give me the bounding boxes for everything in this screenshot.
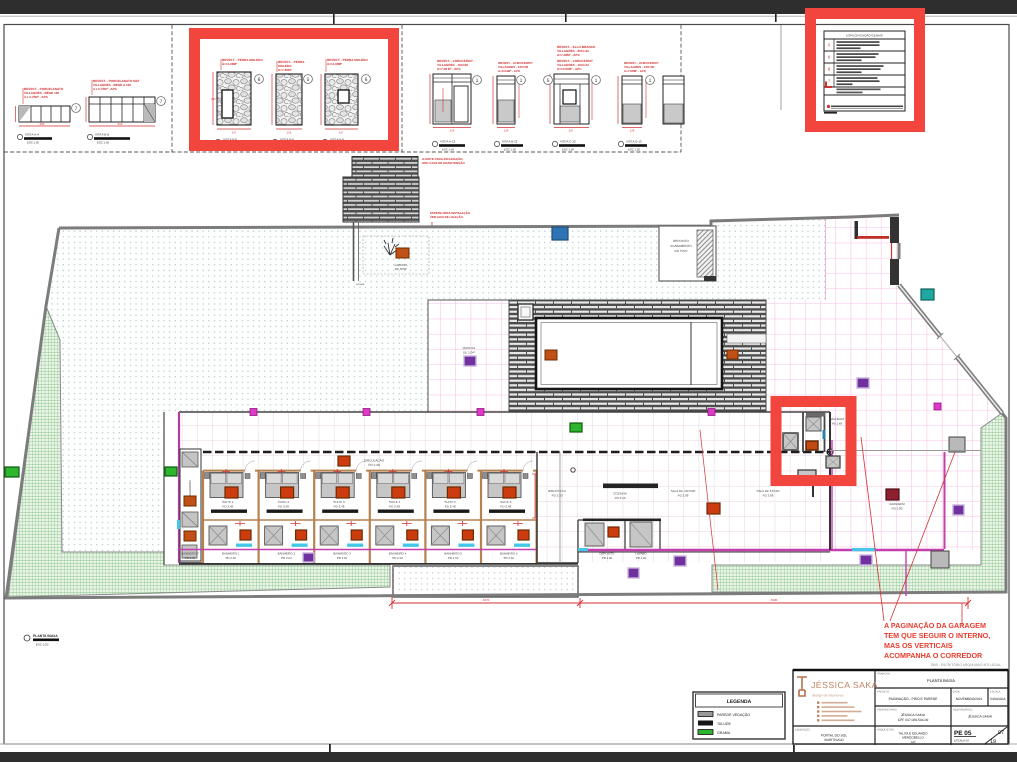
svg-text:A=5.04M² - APC: A=5.04M² - APC bbox=[498, 69, 521, 73]
svg-text:226: 226 bbox=[450, 129, 455, 133]
svg-text:NOVEMBRO/2021: NOVEMBRO/2021 bbox=[956, 697, 983, 701]
svg-text:PD 2.60: PD 2.60 bbox=[337, 556, 348, 560]
svg-text:450: 450 bbox=[118, 122, 123, 126]
svg-text:USO CAVA DE MANUTENÇÃO: USO CAVA DE MANUTENÇÃO bbox=[422, 161, 465, 165]
svg-text:DO PISO: DO PISO bbox=[675, 249, 688, 253]
svg-text:SUITE 6: SUITE 6 bbox=[500, 500, 512, 504]
svg-text:A=7.08M² - APC: A=7.08M² - APC bbox=[624, 69, 647, 73]
svg-text:265: 265 bbox=[211, 97, 216, 101]
svg-text:1: 1 bbox=[595, 78, 598, 84]
svg-text:SALA DE ESTAR: SALA DE ESTAR bbox=[756, 489, 780, 493]
svg-text:ESCALA 50: ESCALA 50 bbox=[954, 739, 969, 743]
svg-text:PE 05: PE 05 bbox=[954, 730, 972, 737]
svg-text:1870: 1870 bbox=[483, 598, 490, 602]
svg-text:GARAGEM: GARAGEM bbox=[889, 502, 905, 506]
svg-text:BANHEIRO 2: BANHEIRO 2 bbox=[278, 552, 296, 556]
svg-text:5: 5 bbox=[547, 78, 550, 84]
svg-text:PAREDE VEDAÇÃO: PAREDE VEDAÇÃO bbox=[717, 712, 750, 717]
svg-text:DE 1.04²: DE 1.04² bbox=[463, 351, 475, 355]
svg-text:A=7.50M²: A=7.50M² bbox=[278, 68, 292, 72]
svg-text:3920: 3920 bbox=[771, 598, 778, 602]
svg-text:VISTA B-B: VISTA B-B bbox=[95, 133, 109, 137]
svg-text:A=7.08 M² - APC: A=7.08 M² - APC bbox=[437, 67, 461, 71]
svg-text:128: 128 bbox=[630, 129, 635, 133]
svg-text:SUITE 4: SUITE 4 bbox=[389, 500, 401, 504]
svg-text:BANHEIRO: BANHEIRO bbox=[830, 417, 845, 421]
svg-text:QUINTAL: QUINTAL bbox=[463, 346, 476, 350]
svg-text:SUITE 1: SUITE 1 bbox=[222, 500, 234, 504]
svg-text:PD 2.60: PD 2.60 bbox=[392, 556, 403, 560]
svg-text:PD 2.48: PD 2.48 bbox=[500, 505, 511, 509]
svg-text:PD 2.48: PD 2.48 bbox=[278, 505, 289, 509]
svg-text:SALA DE JANTAR: SALA DE JANTAR bbox=[671, 489, 697, 493]
svg-text:ENDEREÇO.: ENDEREÇO. bbox=[795, 729, 811, 732]
svg-text:design de interiores: design de interiores bbox=[812, 694, 844, 698]
svg-text:PD 3.08: PD 3.08 bbox=[678, 494, 689, 498]
svg-text:ACOMPANHA O CORREDOR: ACOMPANHA O CORREDOR bbox=[884, 651, 983, 660]
svg-text:LAVANDERIA: LAVANDERIA bbox=[188, 480, 192, 498]
svg-text:128: 128 bbox=[504, 129, 509, 133]
svg-text:PD 1.80: PD 1.80 bbox=[602, 556, 613, 560]
svg-text:1: 1 bbox=[476, 78, 479, 84]
svg-text:GO: GO bbox=[911, 740, 916, 744]
svg-text:07: 07 bbox=[998, 730, 1004, 736]
svg-text:ARQUITETOS.: ARQUITETOS. bbox=[877, 729, 895, 732]
svg-text:TALUDE: TALUDE bbox=[717, 722, 732, 726]
svg-text:A=7.08M² - APC: A=7.08M² - APC bbox=[557, 53, 581, 57]
svg-text:A=10.50M² - APC: A=10.50M² - APC bbox=[557, 67, 582, 71]
svg-text:CIRCULAÇÃO: CIRCULAÇÃO bbox=[364, 459, 385, 463]
svg-text:ESC 1:50: ESC 1:50 bbox=[628, 148, 640, 152]
svg-text:PD 2.60: PD 2.60 bbox=[281, 556, 292, 560]
svg-text:BANHEIRO 1: BANHEIRO 1 bbox=[222, 552, 240, 556]
svg-text:CPF 047.089.584-09: CPF 047.089.584-09 bbox=[898, 718, 929, 722]
svg-text:PD 3.10: PD 3.10 bbox=[552, 494, 563, 498]
svg-text:PD 2.60: PD 2.60 bbox=[448, 556, 459, 560]
svg-text:6: 6 bbox=[258, 77, 261, 83]
svg-text:DATA.: DATA. bbox=[953, 691, 961, 694]
svg-text:RESPONSÁVEL.: RESPONSÁVEL. bbox=[953, 708, 973, 712]
svg-text:JÉSSICA SAKA: JÉSSICA SAKA bbox=[811, 680, 878, 690]
svg-text:OBS.: ESCRITÓRIO ARQUIVADO NTI: OBS.: ESCRITÓRIO ARQUIVADO NTI LEGAL bbox=[931, 663, 1001, 667]
svg-text:4 x 0.75M² - APC: 4 x 0.75M² - APC bbox=[24, 95, 49, 99]
svg-text:PD 2.48: PD 2.48 bbox=[832, 422, 843, 426]
svg-text:PD 2.60: PD 2.60 bbox=[636, 556, 647, 560]
svg-text:BANHEIRO 4: BANHEIRO 4 bbox=[389, 552, 407, 556]
svg-text:VER GUIA DE LIGAÇÃO: VER GUIA DE LIGAÇÃO bbox=[430, 215, 464, 219]
svg-text:ESC 1:50: ESC 1:50 bbox=[562, 148, 574, 152]
svg-text:7: 7 bbox=[75, 106, 78, 112]
svg-text:VISTA A-A: VISTA A-A bbox=[25, 133, 39, 137]
svg-text:A=11.08M²: A=11.08M² bbox=[222, 62, 237, 66]
svg-text:BURITIS/GO: BURITIS/GO bbox=[824, 738, 843, 742]
svg-text:1: 1 bbox=[649, 78, 652, 84]
svg-text:MAS OS VERTICAIS: MAS OS VERTICAIS bbox=[884, 641, 953, 650]
svg-text:COZINHA: COZINHA bbox=[613, 492, 627, 496]
svg-text:ESC 1:50: ESC 1:50 bbox=[27, 141, 39, 145]
svg-text:PD 3.08: PD 3.08 bbox=[763, 494, 774, 498]
svg-text:PRANCHA.: PRANCHA. bbox=[877, 673, 891, 676]
svg-text:ESC 1:50: ESC 1:50 bbox=[504, 148, 516, 152]
svg-text:DEPOSITO: DEPOSITO bbox=[673, 239, 690, 243]
svg-text:A PAGINAÇÃO DA GARAGEM: A PAGINAÇÃO DA GARAGEM bbox=[884, 621, 986, 630]
svg-text:PD 1.80: PD 1.80 bbox=[892, 507, 903, 511]
svg-text:PAGINAÇÃO - PISO E PAREDE: PAGINAÇÃO - PISO E PAREDE bbox=[889, 697, 939, 701]
svg-text:PD 2.63: PD 2.63 bbox=[185, 556, 196, 560]
svg-text:BANHEIRO 6: BANHEIRO 6 bbox=[500, 552, 518, 556]
svg-text:PROPRIETÁRIO.: PROPRIETÁRIO. bbox=[877, 708, 898, 712]
svg-text:19: 19 bbox=[990, 739, 996, 745]
svg-text:PD 2.60: PD 2.60 bbox=[226, 556, 237, 560]
svg-text:5: 5 bbox=[307, 77, 310, 83]
svg-text:ESCALA.: ESCALA. bbox=[990, 691, 1001, 694]
svg-text:LEGENDA: LEGENDA bbox=[727, 699, 752, 705]
svg-text:PD 2.48: PD 2.48 bbox=[445, 505, 456, 509]
svg-text:BANHEIRO 3: BANHEIRO 3 bbox=[333, 552, 351, 556]
svg-text:INDICADA: INDICADA bbox=[990, 697, 1006, 701]
svg-text:BANHEIRO 5: BANHEIRO 5 bbox=[444, 552, 462, 556]
svg-text:BIBLIOTECA: BIBLIOTECA bbox=[548, 489, 566, 493]
svg-text:VISTA B-12: VISTA B-12 bbox=[502, 140, 518, 144]
svg-text:ACABAMENTO: ACABAMENTO bbox=[670, 244, 692, 248]
svg-text:ESC 1:50: ESC 1:50 bbox=[36, 643, 49, 647]
svg-text:JÉSSICA SAKAI: JÉSSICA SAKAI bbox=[901, 713, 925, 717]
svg-text:VISTA A-12: VISTA A-12 bbox=[440, 140, 456, 144]
svg-text:SUITE 5: SUITE 5 bbox=[445, 500, 457, 504]
svg-text:GRAMA: GRAMA bbox=[717, 731, 731, 735]
svg-text:PD 3.10: PD 3.10 bbox=[615, 496, 626, 500]
svg-text:SUITE 3: SUITE 3 bbox=[333, 500, 345, 504]
svg-text:SUITE 2: SUITE 2 bbox=[278, 500, 290, 504]
svg-text:PD 2.48: PD 2.48 bbox=[368, 463, 379, 467]
svg-text:ESC 1:50: ESC 1:50 bbox=[442, 148, 454, 152]
svg-text:DE RISP: DE RISP bbox=[395, 267, 407, 271]
svg-text:TEM QUE SEGUIR O INTERNO,: TEM QUE SEGUIR O INTERNO, bbox=[884, 631, 990, 640]
svg-text:4 x 0.75M² - APC: 4 x 0.75M² - APC bbox=[93, 87, 118, 91]
svg-text:BANHEIRO 7: BANHEIRO 7 bbox=[181, 552, 199, 556]
svg-text:PLANTA BAIXA: PLANTA BAIXA bbox=[927, 678, 955, 683]
svg-text:A=11.08M²: A=11.08M² bbox=[327, 62, 342, 66]
svg-text:247: 247 bbox=[232, 131, 237, 135]
svg-text:VISTA D-12: VISTA D-12 bbox=[626, 140, 642, 144]
svg-text:154: 154 bbox=[287, 131, 292, 135]
svg-text:PORTAL DO SOL: PORTAL DO SOL bbox=[821, 734, 847, 738]
svg-text:escada: escada bbox=[356, 283, 365, 286]
svg-text:ESPECIFICAÇÃO GERAIS: ESPECIFICAÇÃO GERAIS bbox=[846, 34, 883, 38]
svg-text:247: 247 bbox=[339, 131, 344, 135]
svg-text:PD 2.60: PD 2.60 bbox=[504, 556, 515, 560]
svg-text:400: 400 bbox=[40, 122, 45, 126]
svg-text:VISTA C-12: VISTA C-12 bbox=[560, 140, 576, 144]
svg-text:ESC 1:50: ESC 1:50 bbox=[97, 141, 109, 145]
svg-text:JÉSSICA SAKAI: JÉSSICA SAKAI bbox=[968, 715, 992, 719]
svg-text:PD 2.48: PD 2.48 bbox=[222, 505, 233, 509]
svg-text:PD 2.48: PD 2.48 bbox=[334, 505, 345, 509]
svg-text:PROJETO.: PROJETO. bbox=[877, 691, 890, 694]
svg-text:6: 6 bbox=[365, 77, 368, 83]
svg-text:1: 1 bbox=[520, 78, 523, 84]
svg-text:247: 247 bbox=[569, 129, 574, 133]
svg-text:PLANTA BAIXA: PLANTA BAIXA bbox=[33, 634, 58, 638]
svg-text:PD 2.48: PD 2.48 bbox=[389, 505, 400, 509]
svg-text:7: 7 bbox=[160, 99, 163, 105]
